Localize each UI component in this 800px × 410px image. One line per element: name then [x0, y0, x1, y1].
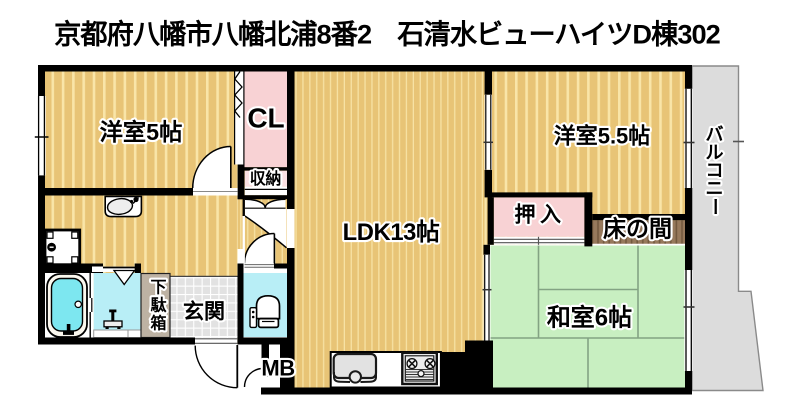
svg-text:和室6帖: 和室6帖 — [547, 304, 632, 332]
svg-text:収納: 収納 — [250, 169, 282, 188]
svg-text:ー: ー — [705, 198, 725, 216]
svg-text:コ: コ — [706, 161, 724, 181]
svg-text:箱: 箱 — [150, 314, 166, 333]
svg-text:京都府八幡市八幡北浦8番2 石清水ビューハイツD棟302: 京都府八幡市八幡北浦8番2 石清水ビューハイツD棟302 — [54, 19, 721, 50]
svg-text:玄関: 玄関 — [183, 300, 225, 324]
svg-text:下: 下 — [150, 280, 166, 297]
svg-text:ル: ル — [706, 143, 724, 163]
svg-text:洋室5帖: 洋室5帖 — [100, 118, 183, 145]
svg-text:床の間: 床の間 — [603, 216, 672, 242]
svg-text:バ: バ — [706, 125, 724, 145]
svg-text:LDK13帖: LDK13帖 — [343, 219, 440, 246]
svg-text:押入: 押入 — [515, 203, 566, 227]
svg-text:洋室5.5帖: 洋室5.5帖 — [554, 124, 651, 149]
svg-text:駄: 駄 — [150, 296, 167, 315]
svg-text:ニ: ニ — [706, 179, 724, 199]
svg-text:CL: CL — [247, 102, 284, 133]
svg-text:MB: MB — [261, 356, 294, 381]
